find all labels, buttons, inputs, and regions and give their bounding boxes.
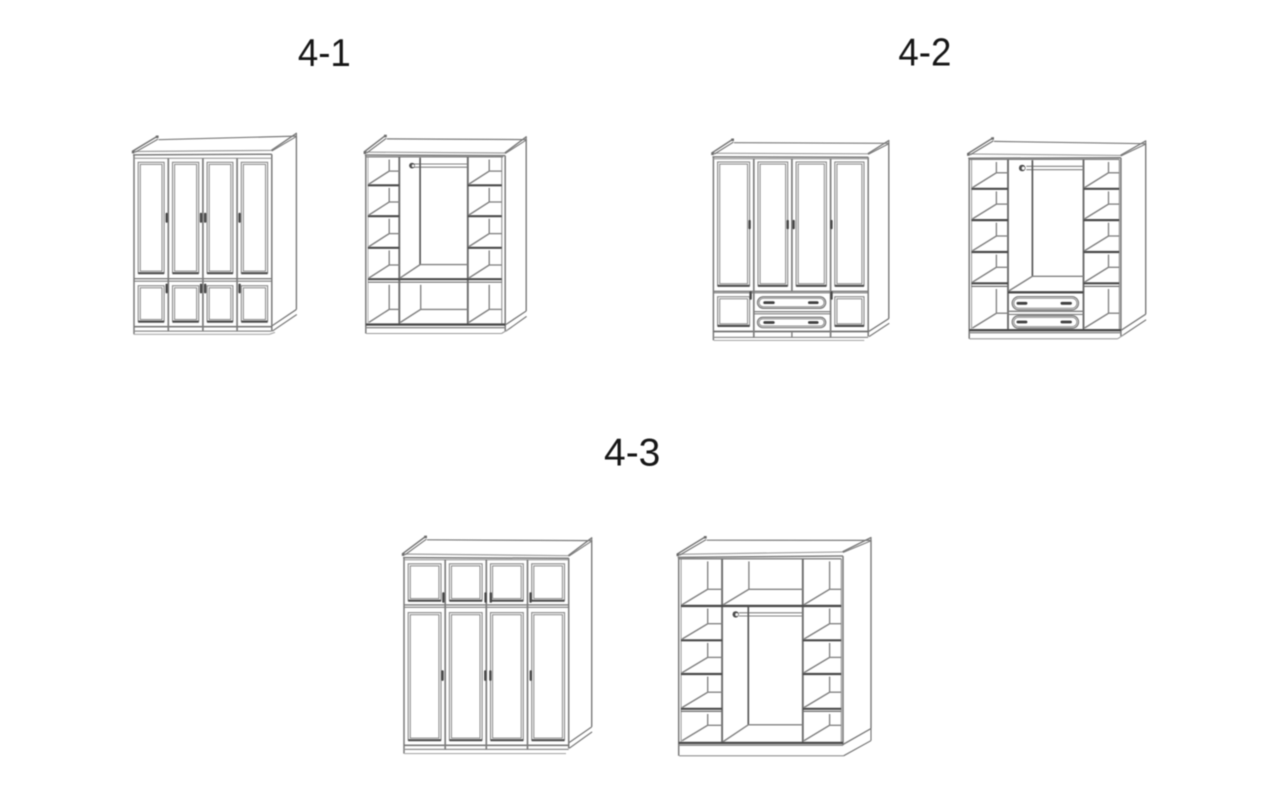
svg-text:4-2: 4-2 [898, 31, 951, 74]
svg-text:4-3: 4-3 [604, 432, 660, 475]
svg-text:4-1: 4-1 [298, 31, 351, 74]
